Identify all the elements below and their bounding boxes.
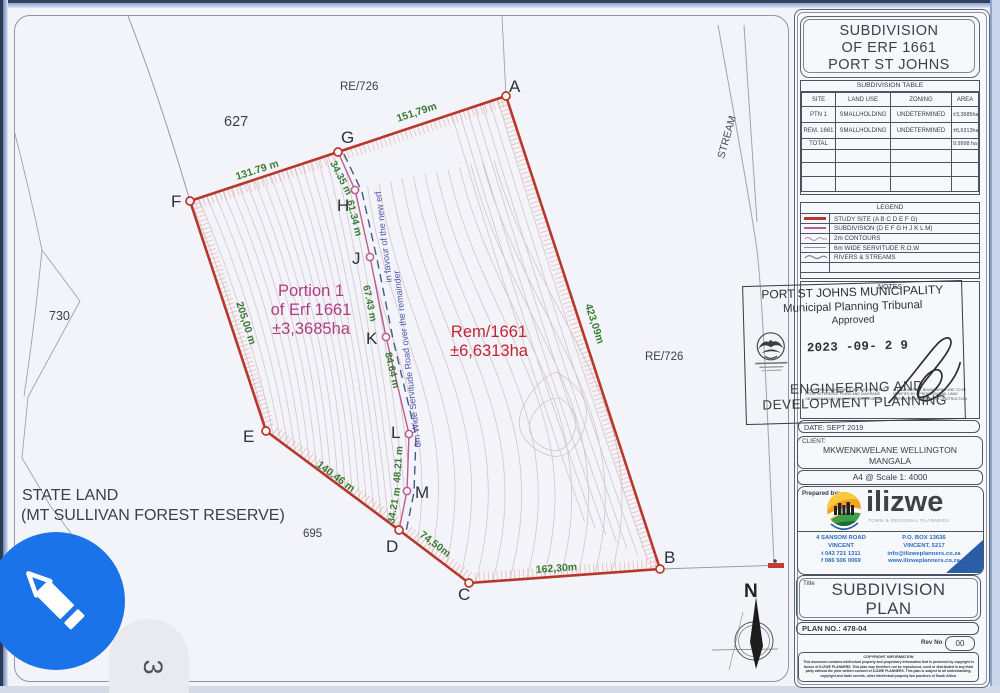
svg-text:±3,3685ha: ±3,3685ha — [272, 320, 351, 338]
svg-text:M: M — [415, 483, 429, 502]
svg-text:F: F — [171, 192, 181, 211]
svg-text:B: B — [664, 548, 675, 567]
svg-text:STATE LAND: STATE LAND — [22, 487, 118, 504]
svg-text:C: C — [458, 585, 470, 604]
svg-text:L: L — [391, 423, 400, 442]
svg-text:of Erf 1661: of Erf 1661 — [271, 301, 352, 319]
svg-text:RE/726: RE/726 — [645, 351, 683, 363]
svg-text:67.43 m: 67.43 m — [360, 284, 378, 322]
svg-text:N: N — [744, 581, 758, 602]
svg-text:D: D — [386, 537, 398, 556]
svg-text:162,30m: 162,30m — [535, 561, 577, 576]
svg-text:STREAM: STREAM — [715, 114, 739, 159]
svg-text:48.21 m: 48.21 m — [392, 446, 406, 483]
svg-text:627: 627 — [224, 114, 248, 130]
svg-text:RE/726: RE/726 — [340, 81, 378, 93]
svg-text:K: K — [366, 329, 378, 348]
svg-text:140.46 m: 140.46 m — [314, 459, 357, 495]
svg-text:695: 695 — [303, 528, 322, 540]
svg-text:in favour of the new erf: in favour of the new erf — [373, 190, 394, 283]
svg-text:Portion 1: Portion 1 — [278, 282, 344, 300]
svg-text:J: J — [352, 249, 361, 268]
svg-text:730: 730 — [49, 309, 70, 323]
svg-text:(MT SULLIVAN FOREST RESERVE): (MT SULLIVAN FOREST RESERVE) — [21, 507, 285, 524]
svg-text:E: E — [243, 427, 254, 446]
svg-text:G: G — [341, 128, 354, 147]
svg-text:A: A — [509, 77, 521, 96]
svg-text:±6,6313ha: ±6,6313ha — [450, 342, 529, 360]
svg-text:Rem/1661: Rem/1661 — [451, 323, 527, 341]
